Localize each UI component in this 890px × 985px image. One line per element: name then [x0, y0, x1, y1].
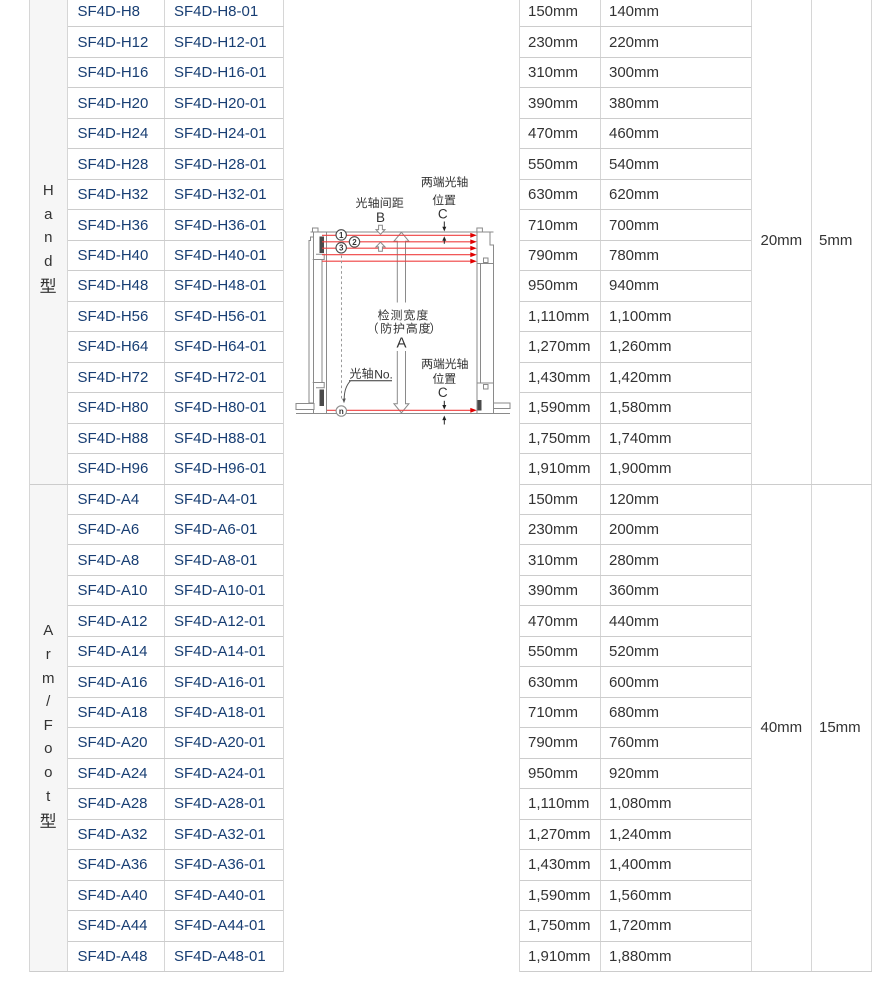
svg-text:2: 2 [352, 238, 357, 247]
svg-text:n: n [339, 407, 344, 416]
svg-text:B: B [376, 210, 385, 225]
svg-text:1: 1 [339, 231, 344, 240]
svg-text:C: C [438, 385, 448, 400]
svg-text:C: C [438, 207, 448, 222]
svg-text:3: 3 [339, 244, 344, 253]
svg-text:A: A [396, 335, 406, 352]
svg-text:No.: No. [374, 368, 393, 382]
